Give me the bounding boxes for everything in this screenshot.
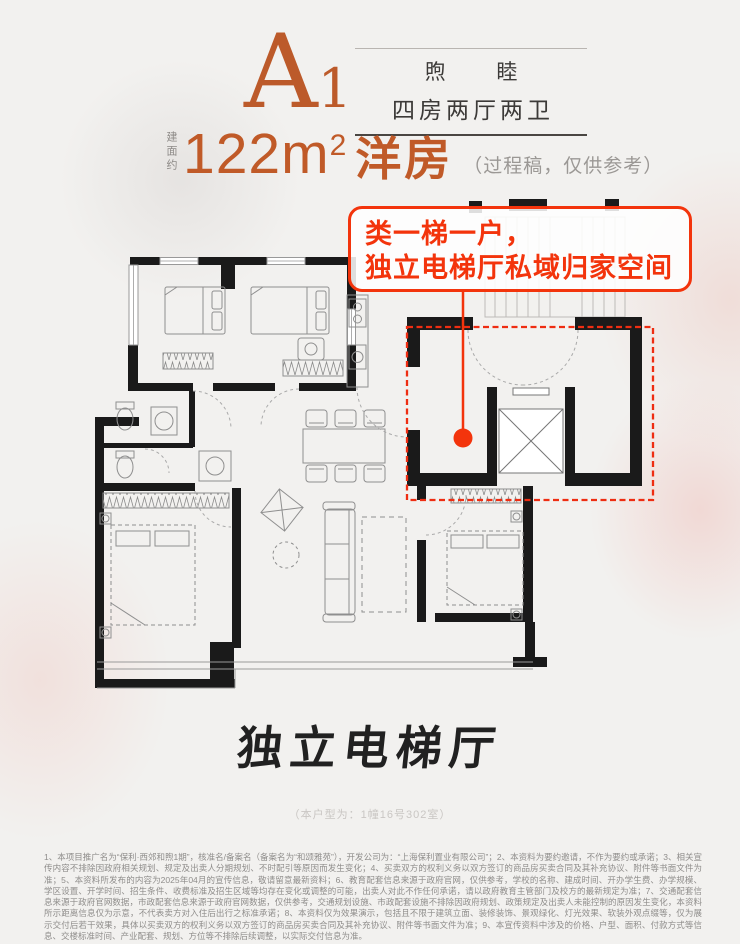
area-figure: 122m2 bbox=[183, 126, 347, 183]
window-mullions bbox=[134, 261, 352, 345]
unit-id: A1 bbox=[244, 22, 352, 124]
product-type: 洋房 bbox=[355, 135, 453, 183]
unit-location-note: （本户型为：1幢16号302室） bbox=[0, 806, 740, 822]
area-prefix: 建面约 bbox=[163, 131, 179, 175]
windows bbox=[129, 258, 356, 346]
unit-number: 1 bbox=[318, 57, 352, 120]
series-name-block: 煦 睦 四房两厅两卫 bbox=[355, 48, 587, 136]
layout-type: 四房两厅两卫 bbox=[355, 91, 587, 125]
area-superscript: 2 bbox=[330, 129, 348, 162]
elevator-icon bbox=[499, 388, 563, 473]
callout-dot bbox=[454, 429, 473, 448]
area-unit: m bbox=[281, 122, 329, 186]
draft-note: （过程稿，仅供参考） bbox=[463, 151, 663, 178]
legal-disclaimer: 1、本项目推广名为“保利·西郊和煦1期”，核准名/备案名（备案名为“和颂雅苑”）… bbox=[44, 852, 702, 942]
furniture bbox=[100, 287, 523, 638]
callout-line1: 类一梯一户， bbox=[365, 218, 689, 252]
area-value: 122 bbox=[183, 122, 281, 186]
feature-title: 独立电梯厅 bbox=[0, 712, 740, 778]
area-row: 建面约 122m2 洋房 （过程稿，仅供参考） bbox=[163, 126, 663, 183]
series-name: 煦 睦 bbox=[355, 56, 587, 86]
unit-letter: A bbox=[244, 13, 318, 132]
callout-line2: 独立电梯厅私域归家空间 bbox=[365, 252, 689, 286]
callout-box: 类一梯一户， 独立电梯厅私域归家空间 bbox=[348, 206, 692, 292]
